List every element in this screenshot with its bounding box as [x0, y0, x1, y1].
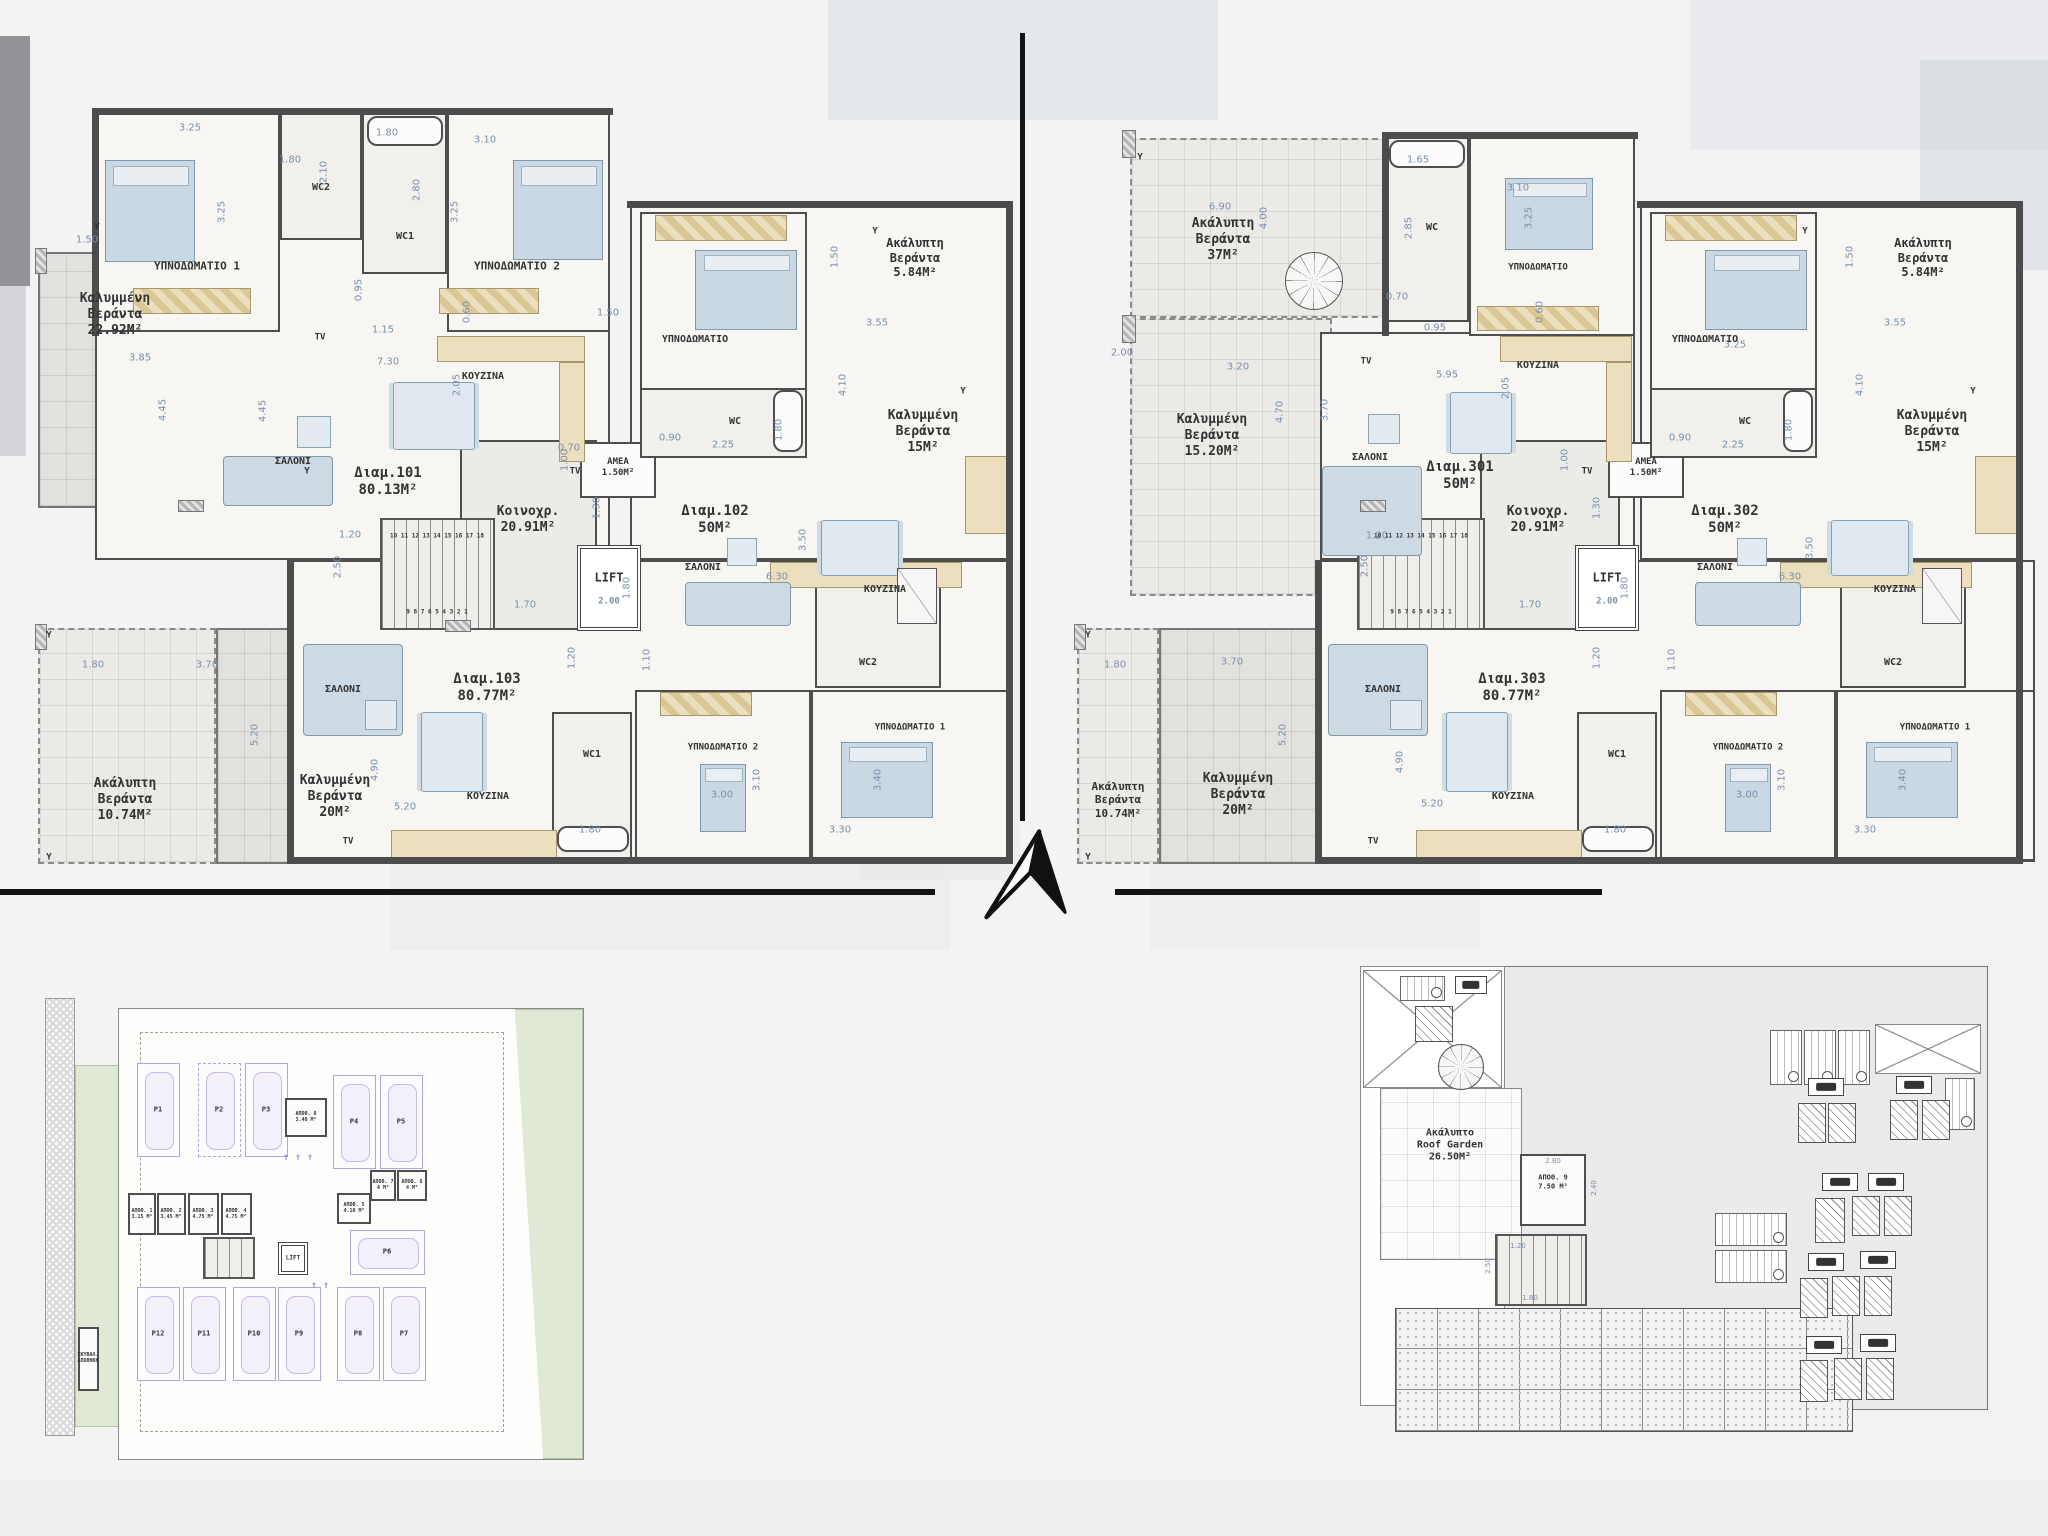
plans-horizontal-divider-left: [0, 889, 935, 895]
site-label: P12: [152, 1330, 165, 1339]
room-label: ΚΟΥΖΙΝΑ: [1874, 584, 1916, 596]
room-label: 2.00: [1596, 597, 1618, 608]
roof-labels-layer: Ακάλυπτο Roof Garden 26.50M²ΑΠΟΘ. 9 7.50…: [1360, 958, 1992, 1450]
roof-plan: 2.802.401.202.501.80 Ακάλυπτο Roof Garde…: [1360, 958, 1992, 1450]
room-label: Y: [1085, 631, 1090, 642]
site-labels-layer: P1P2P3P4P5P6P7P8P9P10P11P12ΑΠΟΘ. 1 3.15 …: [40, 990, 660, 1482]
room-label: TV: [315, 333, 326, 344]
floor-plan-level3: 6.904.001.652.853.103.250.700.952.003.20…: [1060, 100, 2045, 868]
room-label: ΣΑΛΟΝΙ: [1352, 452, 1388, 464]
floor-plan-level1: 3.251.802.101.803.102.803.253.251.503.85…: [35, 100, 1015, 868]
site-parking-plan: P1P2P3P4P5P6P7P8P9P10P11P12ΑΠΟΘ. 1 3.15 …: [40, 990, 660, 1482]
site-label: P7: [400, 1330, 408, 1339]
room-label: WC: [729, 416, 741, 428]
room-label: ΣΑΛΟΝΙ: [1697, 562, 1733, 574]
site-label: ΑΠΟΘ. 7 4 M²: [372, 1179, 393, 1191]
floor1-labels-layer: ΥΠΝΟΔΩΜΑΤΙΟ 1WC2WC1ΥΠΝΟΔΩΜΑΤΙΟ 2Καλυμμέν…: [35, 100, 1015, 868]
room-label: Y: [1137, 153, 1142, 164]
site-label: ↑ ↑: [311, 1280, 329, 1292]
site-label: ΣΚΥΒΑΛ. ΑΠΟΘΗΚΗ: [77, 1352, 98, 1364]
plans-horizontal-divider-right: [1115, 889, 1602, 895]
room-label: ΥΠΝΟΔΩΜΑΤΙΟ 2: [474, 259, 560, 272]
room-label: TV: [570, 467, 581, 478]
room-label: ΣΑΛΟΝΙ: [1365, 684, 1401, 696]
site-label: ΑΠΟΘ. 3 4.75 M²: [192, 1208, 213, 1220]
plans-vertical-divider: [1020, 33, 1025, 821]
room-label: TV: [1582, 467, 1593, 478]
room-label: Καλυμμένη Βεράντα 22.92M²: [80, 291, 150, 339]
site-label: ΑΠΟΘ. 5 4.10 M²: [343, 1202, 364, 1214]
site-label: P1: [154, 1106, 162, 1115]
room-label: ΥΠΝΟΔΩΜΑΤΙΟ 2: [1713, 743, 1783, 754]
room-label: Κοινοχρ. 20.91M²: [497, 504, 560, 536]
site-label: P6: [383, 1248, 391, 1257]
room-label: WC: [1426, 222, 1438, 234]
room-label: Y: [46, 631, 51, 642]
room-label: Ακάλυπτη Βεράντα 10.74M²: [94, 776, 157, 824]
room-label: ΚΟΥΖΙΝΑ: [1492, 791, 1534, 803]
room-label: TV: [1361, 357, 1372, 368]
site-label: ΑΠΟΘ. 4 4.75 M²: [225, 1208, 246, 1220]
site-label: ↑ ↑ ↑: [283, 1152, 313, 1164]
room-label: Διαμ.301 50M²: [1426, 459, 1493, 493]
room-label: ΥΠΝΟΔΩΜΑΤΙΟ 1: [154, 259, 240, 272]
room-label: AMEA 1.50M²: [1630, 457, 1663, 479]
background-photo-fragment: [0, 286, 26, 456]
room-label: Ακάλυπτη Βεράντα 10.74M²: [1092, 780, 1145, 820]
room-label: Καλυμμένη Βεράντα 15.20M²: [1177, 412, 1247, 460]
room-label: Y: [960, 387, 965, 398]
room-label: TV: [343, 837, 354, 848]
room-label: WC: [1739, 416, 1751, 428]
room-label: Y: [872, 227, 877, 238]
site-label: ΑΠΟΘ. 2 3.45 M²: [160, 1208, 181, 1220]
room-label: ΥΠΝΟΔΩΜΑΤΙΟ: [662, 334, 728, 346]
room-label: Y: [1970, 387, 1975, 398]
room-label: ΚΟΥΖΙΝΑ: [462, 371, 504, 383]
room-label: 10 11 12 13 14 15 16 17 18: [1374, 532, 1468, 539]
background-photo-fragment: [0, 36, 30, 286]
room-label: WC2: [859, 657, 877, 669]
room-label: Y: [1085, 853, 1090, 864]
room-label: 10 11 12 13 14 15 16 17 18: [390, 532, 484, 539]
room-label: Y: [1802, 227, 1807, 238]
room-label: 9 8 7 6 5 4 3 2 1: [406, 608, 467, 615]
room-label: Ακάλυπτη Βεράντα 5.84M²: [886, 236, 944, 280]
room-label: LIFT: [595, 571, 624, 586]
room-label: WC1: [396, 231, 414, 243]
site-label: LIFT: [286, 1254, 300, 1261]
room-label: Ακάλυπτη Βεράντα 37M²: [1192, 216, 1255, 264]
room-label: TV: [1368, 837, 1379, 848]
room-label: ΑΠΟΘ. 9 7.50 M²: [1538, 1173, 1568, 1190]
room-label: 2.00: [598, 597, 620, 608]
room-label: WC2: [312, 182, 330, 194]
room-label: Διαμ.101 80.13M²: [354, 465, 421, 499]
room-label: ΣΑΛΟΝΙ: [685, 562, 721, 574]
site-label: ΑΠΟΘ. 6 4 M²: [401, 1179, 422, 1191]
room-label: ΥΠΝΟΔΩΜΑΤΙΟ 2: [688, 743, 758, 754]
room-label: Καλυμμένη Βεράντα 15M²: [1897, 408, 1967, 456]
room-label: Διαμ.302 50M²: [1691, 503, 1758, 537]
site-label: P10: [248, 1330, 261, 1339]
site-label: P5: [397, 1118, 405, 1127]
site-label: P3: [262, 1106, 270, 1115]
room-label: Y: [304, 467, 309, 478]
room-label: Ακάλυπτη Βεράντα 5.84M²: [1894, 236, 1952, 280]
floor3-labels-layer: Ακάλυπτη Βεράντα 37M²WCΥΠΝΟΔΩΜΑΤΙΟΚΟΥΖΙΝ…: [1060, 100, 2045, 868]
background-photo-fragment: [0, 1480, 2048, 1536]
site-label: P8: [354, 1330, 362, 1339]
room-label: Καλυμμένη Βεράντα 20M²: [300, 773, 370, 821]
room-label: Y: [94, 223, 99, 234]
site-label: P9: [295, 1330, 303, 1339]
room-label: AMEA 1.50M²: [602, 457, 635, 479]
room-label: WC2: [1884, 657, 1902, 669]
room-label: Καλυμμένη Βεράντα 15M²: [888, 408, 958, 456]
room-label: LIFT: [1593, 571, 1622, 586]
room-label: 9 8 7 6 5 4 3 2 1: [1390, 608, 1451, 615]
room-label: ΥΠΝΟΔΩΜΑΤΙΟ 1: [875, 723, 945, 734]
room-label: ΥΠΝΟΔΩΜΑΤΙΟ: [1672, 334, 1738, 346]
room-label: Καλυμμένη Βεράντα 20M²: [1203, 771, 1273, 819]
room-label: Ακάλυπτο Roof Garden 26.50M²: [1417, 1128, 1483, 1165]
site-label: P4: [350, 1118, 358, 1127]
room-label: WC1: [583, 749, 601, 761]
site-label: P11: [198, 1330, 211, 1339]
site-label: ΑΠΟΘ. 1 3.15 M²: [131, 1208, 152, 1220]
room-label: ΚΟΥΖΙΝΑ: [467, 791, 509, 803]
room-label: Y: [46, 853, 51, 864]
room-label: ΚΟΥΖΙΝΑ: [864, 584, 906, 596]
room-label: ΥΠΝΟΔΩΜΑΤΙΟ: [1508, 263, 1568, 274]
room-label: Διαμ.102 50M²: [681, 503, 748, 537]
drawing-sheet: 3.251.802.101.803.102.803.253.251.503.85…: [0, 0, 2048, 1536]
room-label: Διαμ.103 80.77M²: [453, 671, 520, 705]
room-label: Κοινοχρ. 20.91M²: [1507, 504, 1570, 536]
room-label: ΥΠΝΟΔΩΜΑΤΙΟ 1: [1900, 723, 1970, 734]
room-label: Διαμ.303 80.77M²: [1478, 671, 1545, 705]
site-label: P2: [215, 1106, 223, 1115]
room-label: ΚΟΥΖΙΝΑ: [1517, 360, 1559, 372]
room-label: ΣΑΛΟΝΙ: [325, 684, 361, 696]
site-label: ΑΠΟΘ. 8 3.40 M²: [295, 1111, 316, 1123]
room-label: WC1: [1608, 749, 1626, 761]
